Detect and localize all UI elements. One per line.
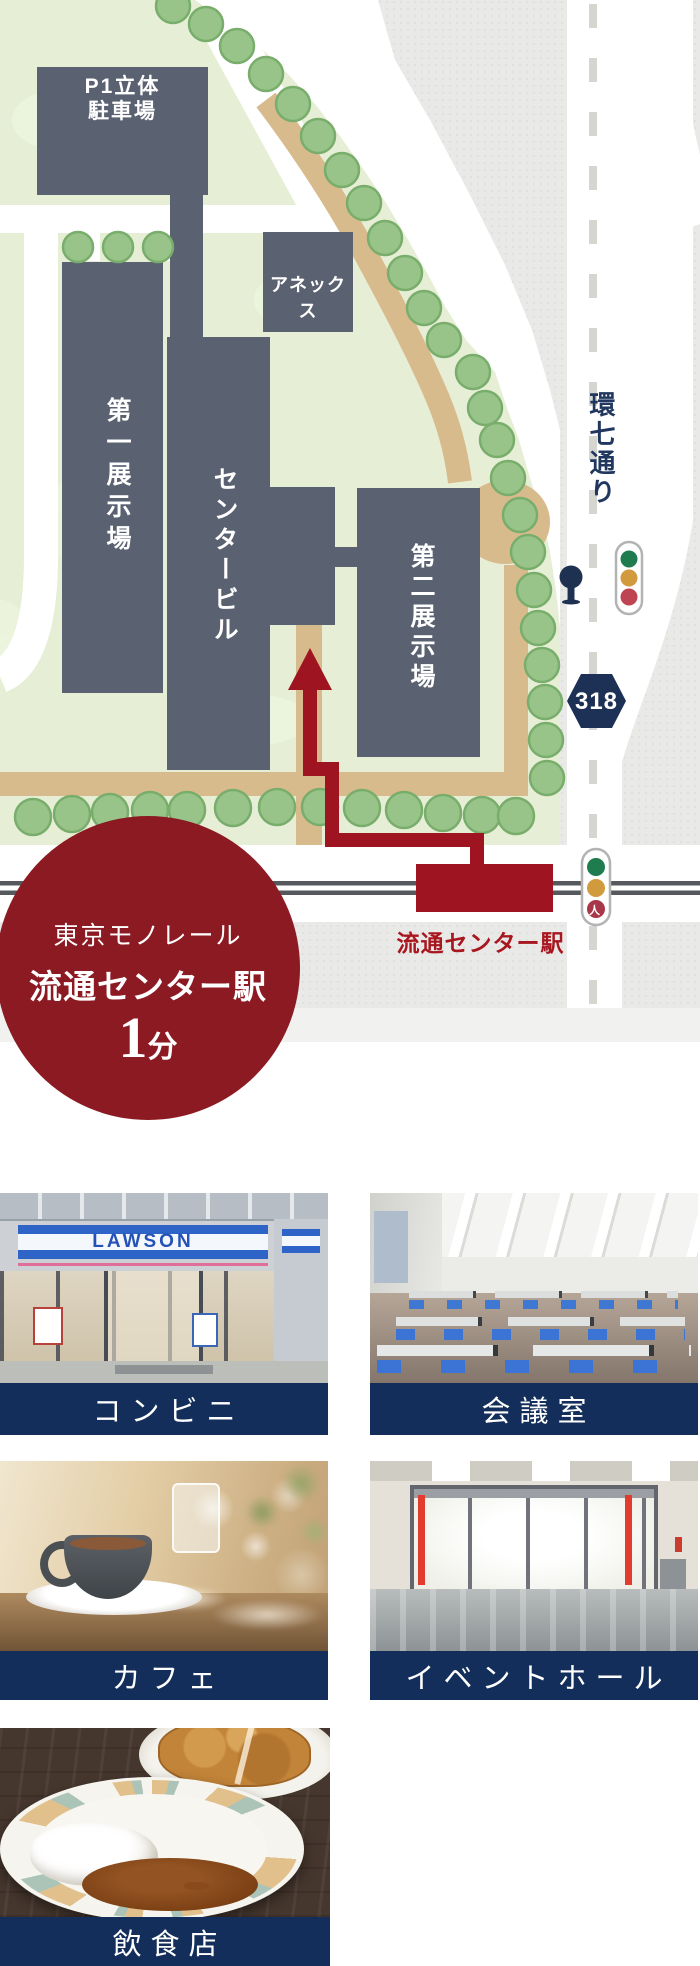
window — [374, 1211, 408, 1283]
traffic-light-icon — [616, 542, 642, 614]
chair-row — [396, 1329, 685, 1340]
event-hall-photo — [370, 1461, 698, 1651]
building-connector-east — [335, 547, 357, 567]
facility-caption: 会議室 — [370, 1383, 698, 1435]
lawson-sign: LAWSON — [18, 1225, 268, 1259]
storefront-pillar — [274, 1219, 328, 1361]
chair-row — [409, 1300, 678, 1309]
restaurant-photo — [0, 1728, 330, 1917]
table-row — [409, 1291, 678, 1298]
equipment-box — [660, 1559, 686, 1589]
plant-leaves — [210, 1461, 328, 1564]
polished-floor — [370, 1589, 698, 1651]
parking-label-line1: P1立体 — [37, 74, 208, 99]
access-map-page: P1立体 駐車場 アネックス 第一展示場 センタービル 第二展示場 環七通り 3… — [0, 0, 700, 1966]
glass-doors — [410, 1485, 658, 1597]
curry-sauce — [82, 1858, 258, 1911]
red-door-strip — [625, 1495, 632, 1585]
route-318-number: 318 — [566, 688, 627, 716]
badge-minutes-value: 1 — [119, 1005, 148, 1070]
floor-reflections — [370, 1589, 698, 1651]
station-marker — [416, 864, 553, 912]
window-poster — [33, 1307, 63, 1345]
convenience-store-photo: LAWSON — [0, 1193, 328, 1383]
parking-label-line2: 駐車場 — [37, 99, 208, 124]
lower-block-right — [622, 922, 700, 1008]
building-center-east-wing — [270, 487, 335, 625]
table-row — [377, 1345, 692, 1356]
facility-card-convenience: LAWSON コンビニ — [0, 1193, 328, 1435]
annex-building-label: アネックス — [263, 271, 353, 323]
chair-row — [377, 1360, 692, 1373]
lawson-sign-text: LAWSON — [92, 1231, 193, 1253]
exhibition-hall-1-label: 第一展示場 — [99, 397, 135, 557]
facility-caption: コンビニ — [0, 1383, 328, 1435]
facility-caption: イベントホール — [370, 1651, 698, 1700]
door-mullions — [414, 1489, 654, 1593]
facility-caption: カフェ — [0, 1651, 328, 1700]
facility-card-event-hall: イベントホール — [370, 1461, 698, 1700]
facility-card-cafe: カフェ — [0, 1461, 328, 1700]
window-poster — [192, 1313, 218, 1347]
badge-minutes-unit: 分 — [148, 1031, 178, 1064]
curry-chunk — [184, 1882, 209, 1891]
table-row — [396, 1317, 685, 1326]
pillar-sign — [282, 1229, 320, 1253]
water-glass — [172, 1483, 220, 1553]
cafe-photo — [0, 1461, 328, 1651]
ceiling — [370, 1461, 698, 1481]
meeting-room-photo — [370, 1193, 698, 1383]
katsu-cut-line — [234, 1728, 255, 1785]
badge-walk-time: 1分 — [0, 1008, 300, 1083]
facility-caption: 飲食店 — [0, 1917, 330, 1966]
curry-plate — [0, 1777, 304, 1917]
storefront-glass — [0, 1271, 274, 1361]
badge-station-name: 流通センター駅 — [0, 960, 300, 1008]
building-connector-north — [170, 195, 203, 337]
entrance-mat — [115, 1365, 213, 1374]
sign-accent-stripe — [18, 1263, 268, 1266]
access-time-badge: 東京モノレール 流通センター駅 1分 — [0, 816, 300, 1120]
exhibition-hall-2-label: 第二展示場 — [403, 543, 439, 693]
station-name-label: 流通センター駅 — [383, 924, 578, 958]
entrance-door — [104, 1271, 202, 1361]
pedestrian-glyph: 人 — [589, 902, 600, 918]
parking-building-label: P1立体 駐車場 — [37, 74, 208, 124]
storefront-top-panel — [0, 1193, 328, 1221]
coffee-surface — [70, 1537, 146, 1550]
fire-extinguisher — [675, 1537, 682, 1552]
red-door-strip — [418, 1495, 425, 1585]
facility-card-meeting-room: 会議室 — [370, 1193, 698, 1435]
road-name-label: 環七通り — [583, 391, 620, 507]
badge-railway-name: 東京モノレール — [0, 916, 300, 952]
sidewalk — [0, 1361, 328, 1383]
center-building-label: センタービル — [206, 466, 242, 646]
facility-card-restaurant: 飲食店 — [0, 1728, 330, 1966]
